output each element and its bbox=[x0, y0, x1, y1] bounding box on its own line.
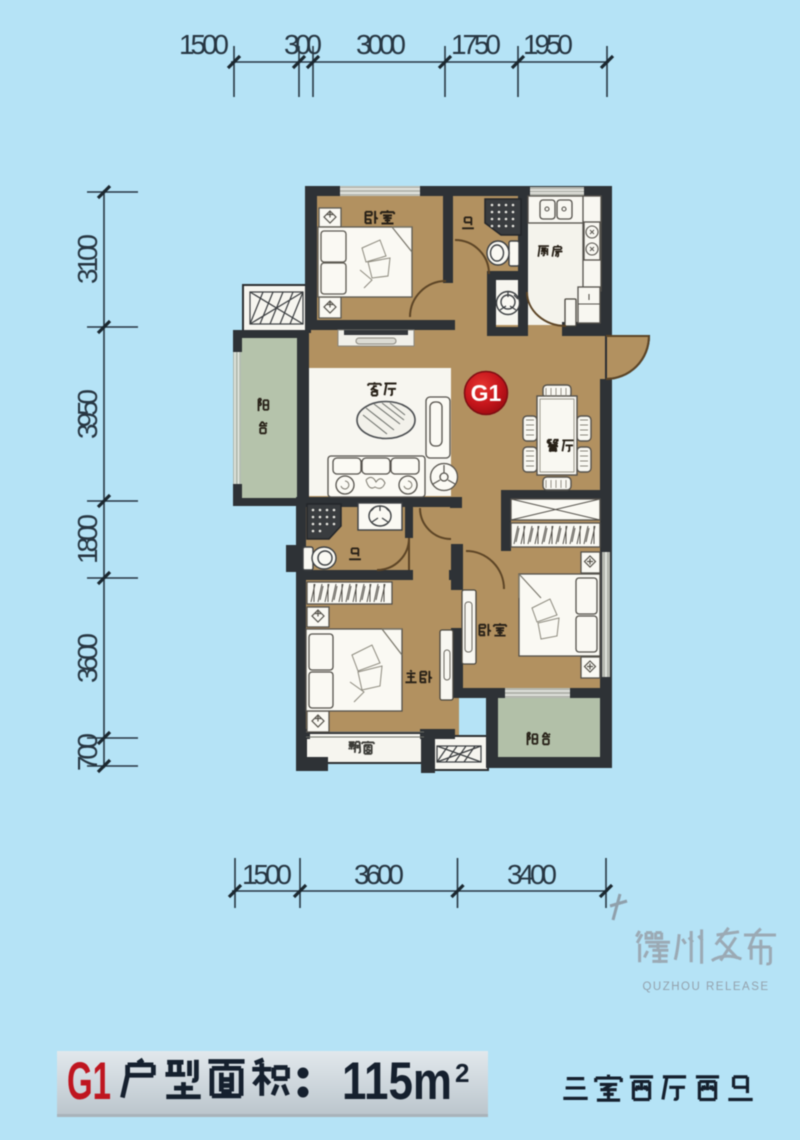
svg-text:3600: 3600 bbox=[354, 859, 404, 890]
svg-text:G1: G1 bbox=[67, 1052, 111, 1111]
svg-text:QUZHOU RELEASE: QUZHOU RELEASE bbox=[642, 981, 769, 993]
svg-text:3100: 3100 bbox=[72, 234, 103, 284]
svg-text:3000: 3000 bbox=[356, 29, 406, 60]
svg-text:3400: 3400 bbox=[507, 859, 557, 890]
svg-text:300: 300 bbox=[284, 29, 322, 60]
svg-text:2: 2 bbox=[455, 1058, 469, 1088]
svg-text:3600: 3600 bbox=[72, 633, 103, 683]
svg-text:1950: 1950 bbox=[523, 29, 573, 60]
svg-text:1800: 1800 bbox=[72, 514, 103, 564]
svg-text:1500: 1500 bbox=[242, 859, 292, 890]
svg-text:700: 700 bbox=[72, 733, 103, 771]
svg-text:3950: 3950 bbox=[72, 389, 103, 439]
svg-text:1750: 1750 bbox=[451, 29, 501, 60]
svg-text:G1: G1 bbox=[471, 380, 502, 406]
svg-text:1500: 1500 bbox=[179, 29, 229, 60]
svg-text:115m: 115m bbox=[342, 1052, 452, 1111]
